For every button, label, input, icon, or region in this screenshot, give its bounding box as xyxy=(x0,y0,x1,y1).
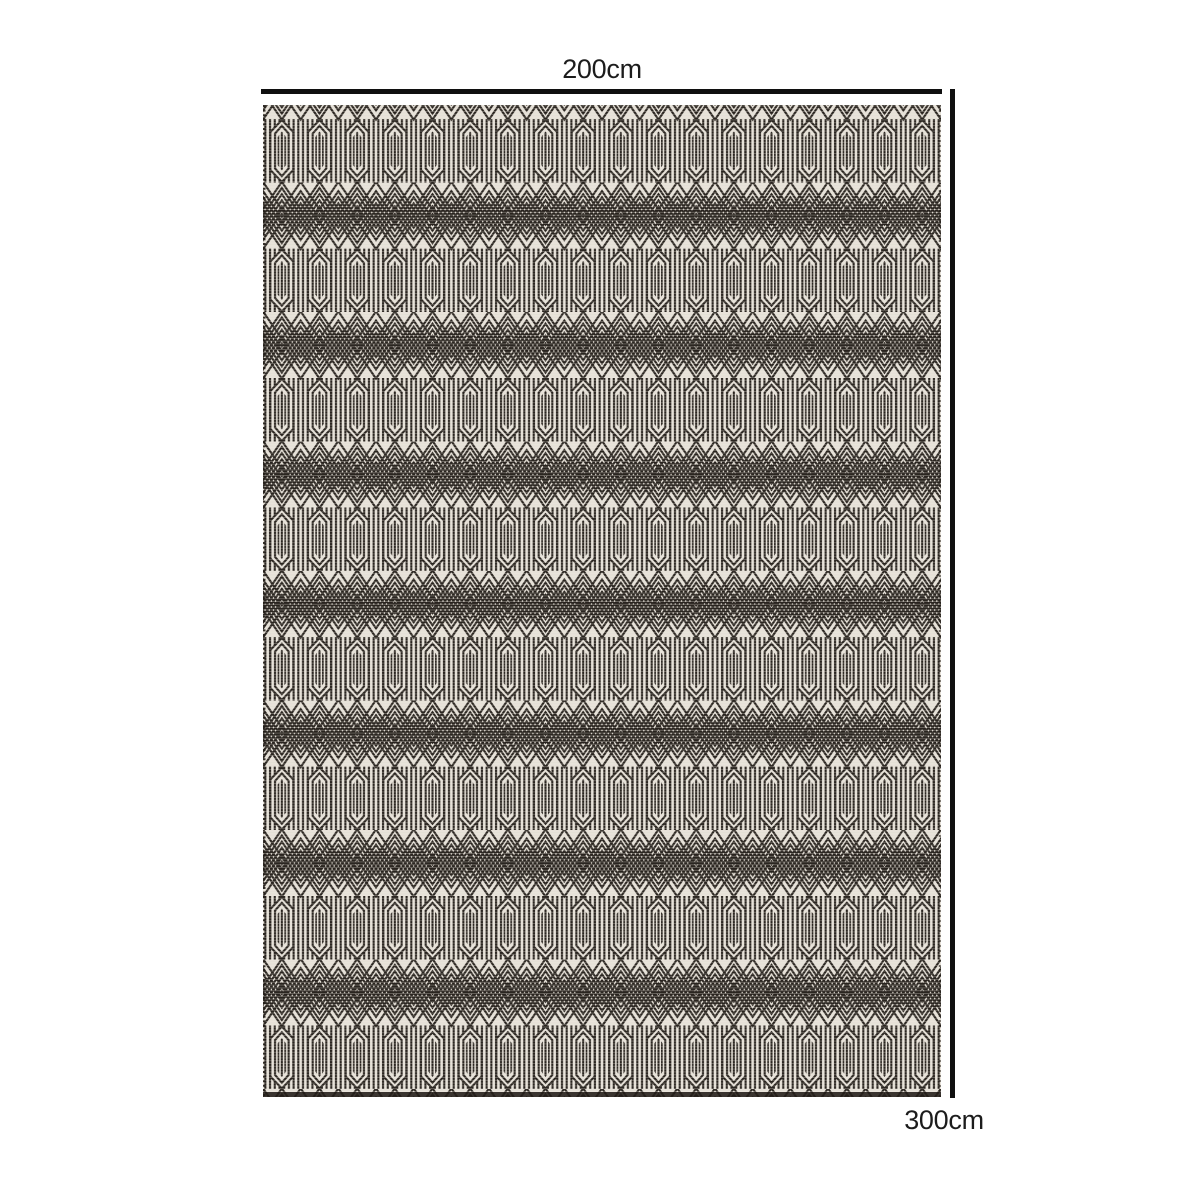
height-dimension-line xyxy=(950,89,955,1098)
width-dimension-line xyxy=(261,89,942,94)
rug-bottom-edge xyxy=(263,1092,941,1097)
dimension-diagram: 200cm 300cm xyxy=(0,0,1200,1200)
rug-image xyxy=(263,105,941,1097)
height-label: 300cm xyxy=(844,1105,1044,1135)
width-label: 200cm xyxy=(262,54,942,84)
rug-pattern xyxy=(263,105,941,1097)
